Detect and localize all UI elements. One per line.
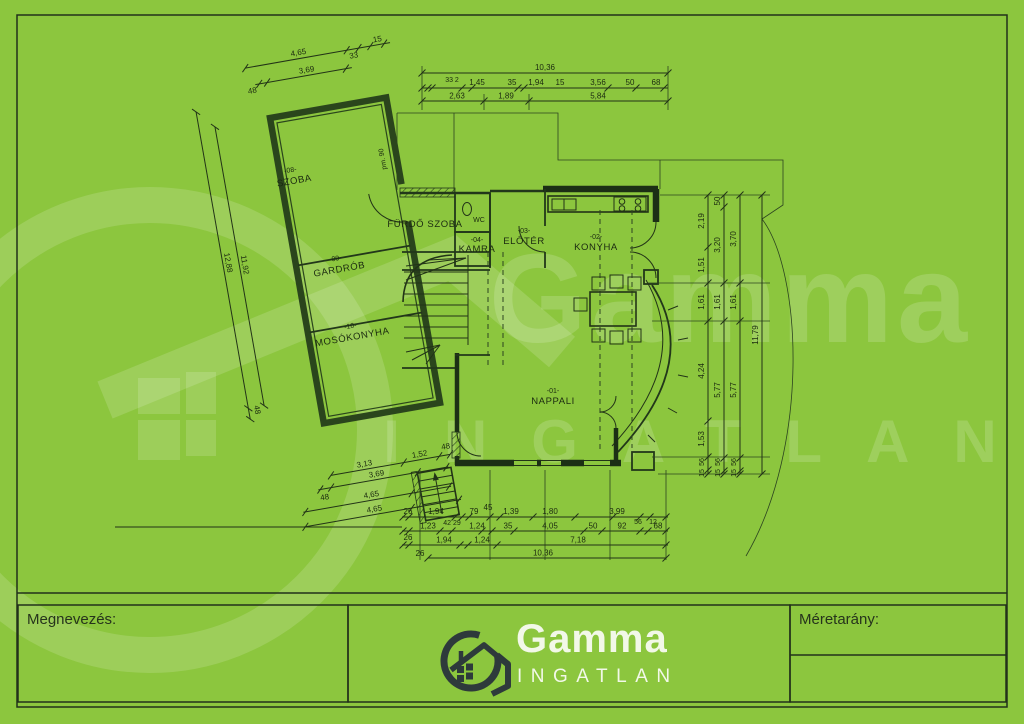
logo-window-pane: [466, 664, 473, 671]
dim: 92: [618, 522, 627, 531]
dim: 35: [508, 78, 517, 87]
room-label-nappali: NAPPALI: [531, 396, 575, 407]
room-id-nappali: -01-: [547, 388, 560, 395]
dim: 4,24: [697, 363, 706, 379]
logo-window-pane: [457, 675, 464, 682]
dim: 5,84: [590, 92, 606, 101]
dim: 33 2: [445, 77, 459, 84]
dim: 42 29: [443, 520, 461, 527]
dim: 4,05: [542, 522, 558, 531]
dim: 5,77: [729, 382, 738, 398]
room-label-eloter: ELŐTÉR: [503, 236, 545, 247]
dim: 1,94: [436, 536, 452, 545]
hatched-wall: [400, 188, 455, 197]
room-label-kamra: KAMRA: [459, 244, 496, 255]
dim: 56: [715, 458, 722, 466]
dim: 56: [731, 458, 738, 466]
room-label-konyha: KONYHA: [574, 242, 618, 253]
dim: 5,77: [713, 382, 722, 398]
logo-window-pane: [457, 666, 464, 673]
logo-window-pane: [466, 673, 473, 680]
dim: 50: [589, 522, 598, 531]
dim: 1,61: [713, 294, 722, 310]
room-label-furdoszoba: FÜRDŐ SZOBA: [387, 219, 462, 230]
dim: 3,56: [590, 78, 606, 87]
dim: 1,24: [474, 536, 490, 545]
dim: 1,61: [697, 294, 706, 310]
dim: 1,39: [503, 507, 519, 516]
dim: 1,23: [420, 522, 436, 531]
dim: 1,89: [498, 92, 514, 101]
dim: 2,63: [449, 92, 465, 101]
dim: 3,99: [609, 507, 625, 516]
dim: 1,94: [528, 78, 544, 87]
dim: 26: [416, 549, 425, 558]
brand-name: Gamma: [516, 617, 668, 661]
dim: 50: [626, 78, 635, 87]
room-id-konyha: -02-: [590, 234, 603, 241]
dim: 15: [715, 469, 722, 477]
room-id-kamra: -04-: [471, 237, 484, 244]
dim: 26: [404, 533, 413, 542]
dim: 50: [713, 196, 722, 205]
dim: 35: [504, 522, 513, 531]
dim: 3,70: [729, 231, 738, 247]
dim: 1,24: [469, 522, 485, 531]
dim: 11,79: [751, 325, 760, 345]
name-field-label: Megnevezés:: [27, 611, 116, 628]
floor-plan-sheet: Gamma INGATLAN -08- SZOBA -09- GARDRÓB -…: [0, 0, 1024, 724]
dim: 15: [556, 78, 565, 87]
dim: 15: [731, 469, 738, 477]
dim: 3,20: [713, 237, 722, 253]
brand-subtitle: INGATLAN: [517, 666, 679, 687]
dim: 79: [470, 507, 479, 516]
dim: 10,36: [535, 63, 556, 72]
scale-field-label: Méretarány:: [799, 611, 879, 628]
dim: 1,51: [697, 257, 706, 273]
dim: 1,53: [697, 431, 706, 447]
dim: 2,19: [697, 213, 706, 229]
dim: 68: [652, 78, 661, 87]
dim: 1,94: [428, 507, 444, 516]
dim: 45: [484, 503, 493, 512]
dim: 10,36: [533, 549, 554, 558]
room-id-eloter: -03-: [518, 228, 531, 235]
dim: 1,61: [729, 294, 738, 310]
dim: 1,45: [469, 78, 485, 87]
dim: 7,18: [570, 536, 586, 545]
room-label-wc: WC: [473, 217, 485, 224]
dim: 26: [404, 507, 413, 516]
dim: 56: [699, 458, 706, 466]
dim: 56: [634, 519, 642, 526]
dim: 1,80: [542, 507, 558, 516]
dim: 68: [654, 522, 663, 531]
dim: 15: [699, 469, 706, 477]
